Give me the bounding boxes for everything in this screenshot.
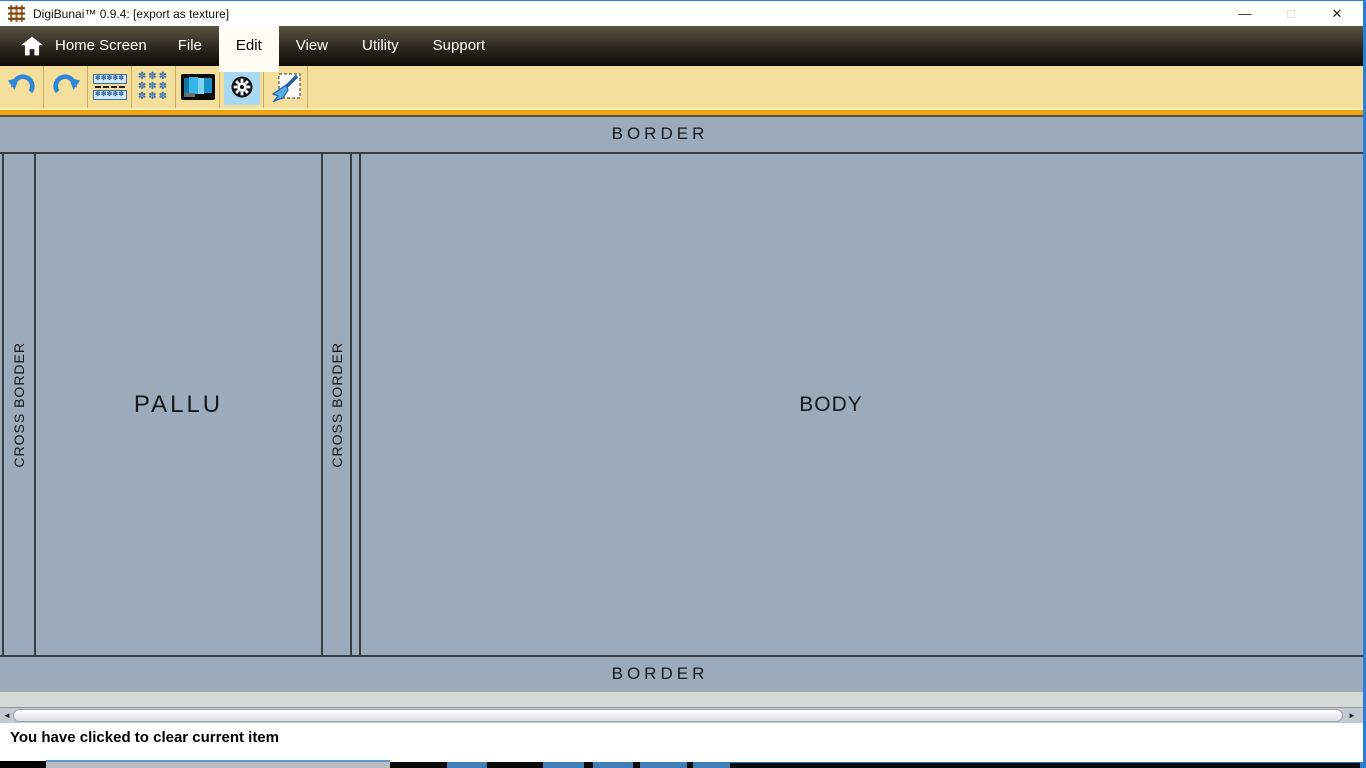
- canvas-gap: [0, 692, 1363, 707]
- canvas-line: [0, 655, 1363, 657]
- scrollbar-thumb[interactable]: [13, 709, 1343, 722]
- taskbar-strip-segment: [633, 762, 640, 768]
- menu-item-support[interactable]: Support: [416, 26, 503, 66]
- app-window: DigiBunai™ 0.9.4: [export as texture] — …: [0, 0, 1366, 768]
- menu-bar: Home Screen File Edit View Utility Suppo…: [0, 26, 1366, 66]
- title-bar: DigiBunai™ 0.9.4: [export as texture] — …: [0, 0, 1366, 26]
- menu-item-view[interactable]: View: [279, 26, 345, 66]
- border-bottom-label: BORDER: [0, 664, 1320, 684]
- menu-item-file[interactable]: File: [161, 26, 219, 66]
- menu-label: File: [178, 37, 202, 54]
- app-weave-icon: [8, 5, 25, 22]
- menu-label: Edit: [236, 37, 262, 54]
- canvas-line: [350, 152, 352, 657]
- menu-label: Home Screen: [55, 26, 147, 66]
- border-top-label: BORDER: [0, 124, 1320, 144]
- menu-label: Utility: [362, 37, 399, 54]
- taskbar-strip-segment: [693, 762, 730, 768]
- broom-icon: [269, 70, 303, 104]
- home-icon: [20, 35, 44, 57]
- menu-label: Support: [433, 37, 486, 54]
- body-region[interactable]: BODY: [361, 154, 1301, 655]
- settings-button[interactable]: [220, 66, 264, 108]
- redo-icon: [51, 72, 81, 102]
- status-message: You have clicked to clear current item: [10, 729, 279, 746]
- menu-item-edit[interactable]: Edit: [219, 26, 279, 72]
- artwork-icon: [180, 73, 216, 101]
- taskbar-strip-segment: [584, 762, 593, 768]
- toolbar: ✽✽✽✽✽ ✽✽✽✽✽ ✽✽✽✽✽✽✽✽✽: [0, 66, 1366, 108]
- cross-border-mid-region[interactable]: CROSS BORDER: [323, 154, 350, 655]
- taskbar-strip-segment: [46, 762, 390, 768]
- taskbar-strip-segment: [0, 761, 46, 768]
- gear-icon: [228, 73, 256, 101]
- motif-grid-icon: ✽✽✽✽✽✽✽✽✽: [138, 72, 169, 102]
- pallu-label: PALLU: [134, 391, 223, 419]
- taskbar-strip-segment: [593, 762, 633, 768]
- dashed-line: [95, 86, 125, 88]
- pallu-region[interactable]: PALLU: [36, 154, 321, 655]
- cross-border-left-region[interactable]: CROSS BORDER: [4, 154, 34, 655]
- close-icon[interactable]: ✕: [1314, 1, 1360, 26]
- cross-border-left-label: CROSS BORDER: [11, 342, 27, 468]
- window-title: DigiBunai™ 0.9.4: [export as texture]: [33, 7, 229, 21]
- toolbar-accent-band: [0, 108, 1366, 117]
- cross-border-mid-label: CROSS BORDER: [329, 342, 345, 468]
- redo-button[interactable]: [44, 66, 88, 108]
- menu-label: View: [296, 37, 328, 54]
- horizontal-scrollbar[interactable]: ◄ ►: [0, 707, 1363, 723]
- border-design-button[interactable]: ✽✽✽✽✽ ✽✽✽✽✽: [88, 66, 132, 108]
- menu-item-utility[interactable]: Utility: [345, 26, 416, 66]
- canvas[interactable]: BORDER CROSS BORDER PALLU CROSS BORDER B…: [0, 117, 1363, 692]
- scroll-right-arrow-icon[interactable]: ►: [1345, 709, 1359, 723]
- undo-button[interactable]: [0, 66, 44, 108]
- stars-row: ✽✽✽✽✽: [93, 90, 127, 100]
- minimize-icon[interactable]: —: [1222, 1, 1268, 26]
- window-controls: — □ ✕: [1222, 1, 1360, 26]
- stars-row: ✽✽✽✽✽: [93, 74, 127, 84]
- undo-icon: [7, 72, 37, 102]
- menu-item-home-screen[interactable]: Home Screen: [6, 26, 161, 66]
- clear-canvas-button[interactable]: [264, 66, 308, 108]
- taskbar-strip-segment: [390, 762, 447, 768]
- border-pattern-icon: ✽✽✽✽✽ ✽✽✽✽✽: [93, 74, 127, 100]
- taskbar-strip-segment: [487, 762, 543, 768]
- maximize-icon[interactable]: □: [1268, 1, 1314, 26]
- taskbar-strip-segment: [543, 762, 584, 768]
- taskbar-strip-segment: [640, 762, 687, 768]
- taskbar-strip: [0, 760, 1366, 768]
- motif-grid-button[interactable]: ✽✽✽✽✽✽✽✽✽: [132, 66, 176, 108]
- body-label: BODY: [799, 393, 863, 417]
- settings-selected-highlight: [224, 69, 260, 105]
- artwork-view-button[interactable]: [176, 66, 220, 108]
- taskbar-strip-segment: [447, 762, 487, 768]
- status-bar: You have clicked to clear current item: [0, 723, 1363, 760]
- taskbar-strip-segment: [730, 763, 1360, 768]
- scroll-left-arrow-icon[interactable]: ◄: [0, 709, 14, 723]
